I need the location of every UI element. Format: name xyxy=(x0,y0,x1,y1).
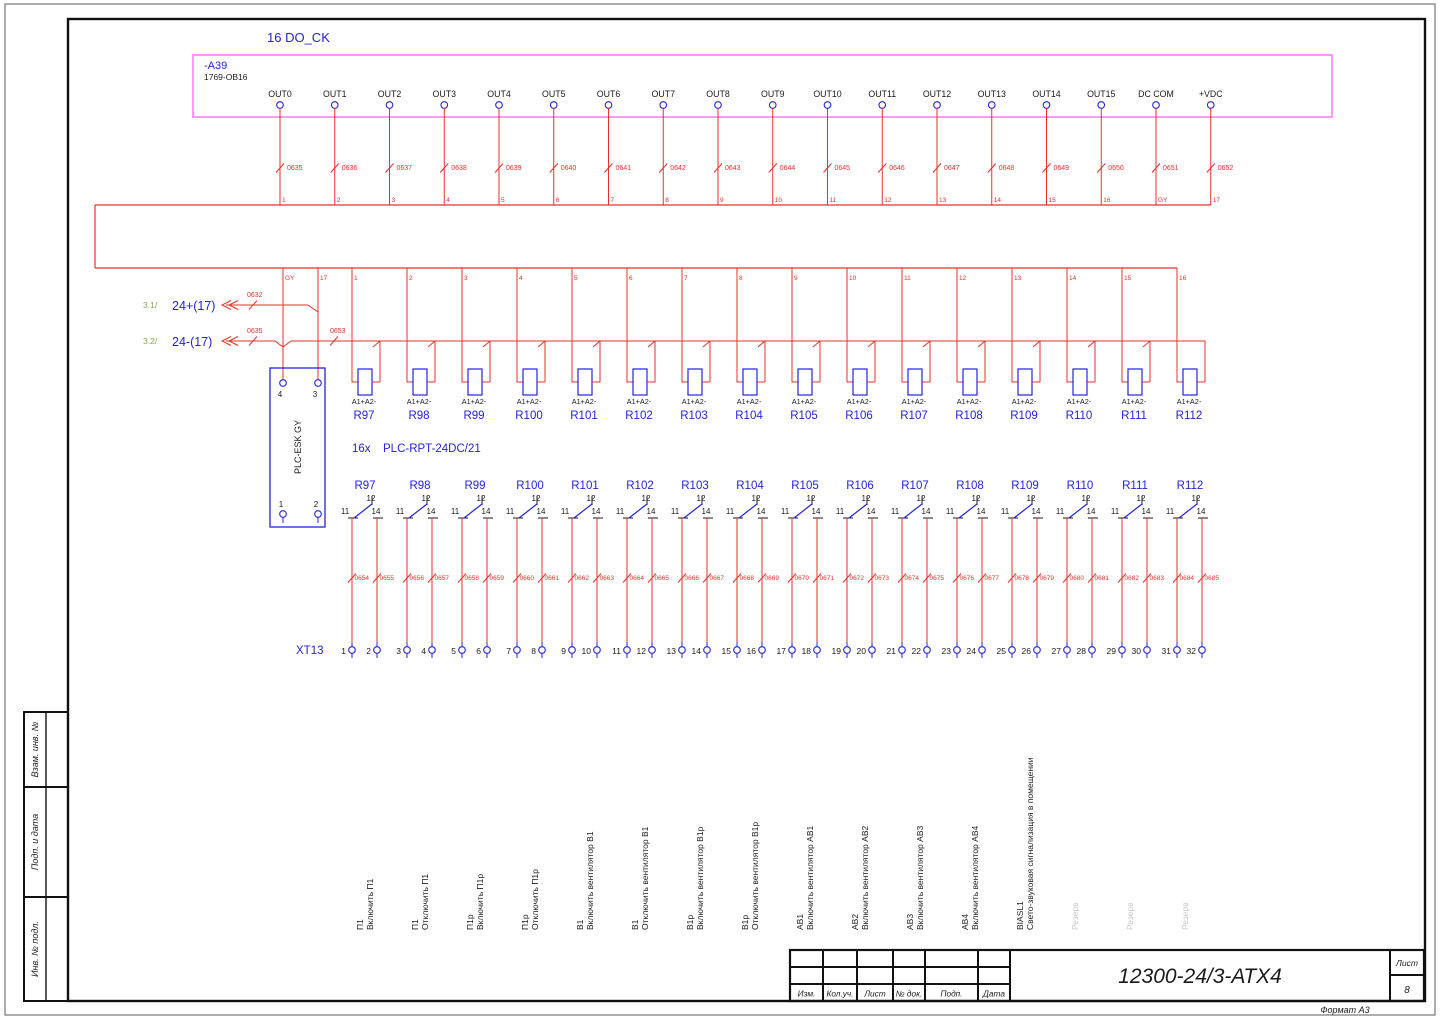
wire-number: 0667 xyxy=(710,575,725,582)
contact-pin-11: 11 xyxy=(781,507,790,516)
contact-lever xyxy=(464,504,482,518)
revision-column-label: Лист xyxy=(863,989,885,999)
wire-number: 0648 xyxy=(999,165,1015,172)
contact-pin-14: 14 xyxy=(372,507,381,516)
junction-jog xyxy=(538,341,545,347)
coil-terminal-label: A1+A2- xyxy=(627,397,652,406)
wire-number: 0668 xyxy=(740,575,755,582)
relay-contact-name: R111 xyxy=(1122,480,1148,492)
pin-circle xyxy=(277,102,284,109)
contact-pin-14: 14 xyxy=(702,507,711,516)
function-description-line: Включить вентилятор АВ4 xyxy=(970,826,980,930)
relay-contact-name: R112 xyxy=(1177,480,1204,492)
function-description-line: В1р xyxy=(740,915,750,930)
terminal-circle xyxy=(954,647,961,654)
function-description: В1рОтключить вентилятор В1р xyxy=(740,822,760,930)
relay-coil xyxy=(688,369,702,395)
terminal-circle xyxy=(349,647,356,654)
function-description-line: Включить П1 xyxy=(365,878,375,930)
wire-number: 0673 xyxy=(875,575,890,582)
function-description-line: Резерв xyxy=(1070,902,1080,930)
pin-circle xyxy=(934,102,941,109)
pin-circle xyxy=(1098,102,1105,109)
interface-pin-circle xyxy=(280,511,287,518)
terminal-number: 28 xyxy=(1077,646,1087,656)
relay-name: R109 xyxy=(1010,410,1038,422)
terminal-circle xyxy=(1034,647,1041,654)
contact-pin-11: 11 xyxy=(726,507,735,516)
function-description-line: Отключить вентилятор В1р xyxy=(750,822,760,930)
bundle-entry-number: 11 xyxy=(830,197,837,204)
function-description-line: П1р xyxy=(520,914,530,930)
bundle-entry-number: 4 xyxy=(446,197,450,204)
terminal-number: 18 xyxy=(802,646,812,656)
coil-terminal-label: A1+A2- xyxy=(352,397,377,406)
contact-lever xyxy=(794,504,812,518)
function-description: П1Включить П1 xyxy=(355,878,375,930)
relay-name: R103 xyxy=(680,410,708,422)
contact-pin-14: 14 xyxy=(1197,507,1206,516)
relay-coil xyxy=(963,369,977,395)
relay-contact-name: R104 xyxy=(736,480,764,492)
wire-number: 0659 xyxy=(490,575,505,582)
coil-drop xyxy=(902,268,908,382)
wire-number: 0642 xyxy=(670,165,686,172)
terminal-number: 32 xyxy=(1187,646,1197,656)
coil-drop xyxy=(847,268,853,382)
contact-lever xyxy=(409,504,427,518)
function-description-line: BIASL1 xyxy=(1015,901,1025,930)
function-description: АВ4Включить вентилятор АВ4 xyxy=(960,826,980,930)
contact-lever xyxy=(1124,504,1142,518)
terminal-number: 19 xyxy=(832,646,842,656)
contact-pin-14: 14 xyxy=(427,507,436,516)
pin-label: OUT12 xyxy=(923,89,951,99)
pin-label: OUT10 xyxy=(813,89,841,99)
function-description-line: Отключить П1р xyxy=(530,869,540,930)
bundle-entry-number: 9 xyxy=(720,197,724,204)
terminal-number: 1 xyxy=(341,646,346,656)
terminal-circle xyxy=(649,647,656,654)
contact-pin-14: 14 xyxy=(1142,507,1151,516)
function-description-line: Включить вентилятор АВ3 xyxy=(915,826,925,930)
interface-pin-circle xyxy=(280,380,287,387)
function-description-line: Включить вентилятор В1 xyxy=(585,831,595,930)
terminal-circle xyxy=(594,647,601,654)
terminal-circle xyxy=(1009,647,1016,654)
pin-label: OUT9 xyxy=(761,89,785,99)
pin-circle xyxy=(331,102,338,109)
coil-drop xyxy=(407,268,413,382)
junction-jog xyxy=(648,341,655,347)
function-description: П1рОтключить П1р xyxy=(520,869,540,930)
function-description-line: Включить вентилятор АВ1 xyxy=(805,826,815,930)
bundle-exit-number: 6 xyxy=(629,275,633,282)
pin-label: OUT1 xyxy=(323,89,347,99)
contact-lever xyxy=(354,504,372,518)
junction-jog xyxy=(1033,341,1040,347)
relay-coil xyxy=(743,369,757,395)
terminal-number: 10 xyxy=(582,646,592,656)
wire-number: 0660 xyxy=(520,575,535,582)
contact-pin-12: 12 xyxy=(1082,494,1091,503)
plc-module-box xyxy=(193,55,1332,117)
module-type: 1769-OB16 xyxy=(204,72,248,82)
function-description-line: Включить вентилятор В1р xyxy=(695,826,705,930)
function-description-line: АВ2 xyxy=(850,914,860,930)
wire-number: 0684 xyxy=(1180,575,1195,582)
relay-contact-name: R103 xyxy=(681,480,709,492)
contact-pin-12: 12 xyxy=(972,494,981,503)
relay-name: R112 xyxy=(1176,410,1203,422)
contact-pin-11: 11 xyxy=(1166,507,1175,516)
relay-contact-name: R101 xyxy=(571,480,599,492)
pin-circle xyxy=(824,102,831,109)
contact-pin-12: 12 xyxy=(587,494,596,503)
pin-circle xyxy=(660,102,667,109)
coil-terminal-label: A1+A2- xyxy=(737,397,762,406)
pin-circle xyxy=(769,102,776,109)
terminal-number: 9 xyxy=(561,646,566,656)
wire-number: 0676 xyxy=(960,575,975,582)
wire-number: 0681 xyxy=(1095,575,1110,582)
function-description: Резерв xyxy=(1180,902,1190,930)
terminal-circle xyxy=(624,647,631,654)
contact-pin-14: 14 xyxy=(592,507,601,516)
contact-pin-14: 14 xyxy=(977,507,986,516)
relay-contact-name: R99 xyxy=(464,480,485,492)
bundle-entry-number: 8 xyxy=(665,197,669,204)
junction-jog xyxy=(758,341,765,347)
terminal-number: 3 xyxy=(396,646,401,656)
relay-coil xyxy=(798,369,812,395)
junction-jog xyxy=(868,341,875,347)
contact-pin-14: 14 xyxy=(922,507,931,516)
contact-pin-12: 12 xyxy=(642,494,651,503)
contact-pin-14: 14 xyxy=(812,507,821,516)
sheet-number: 8 xyxy=(1404,985,1410,996)
function-description-line: Включить П1р xyxy=(475,874,485,930)
junction-jog xyxy=(308,305,318,312)
wire-number: 0664 xyxy=(630,575,645,582)
coil-drop xyxy=(1122,268,1128,382)
pin-circle xyxy=(1207,102,1214,109)
contact-pin-14: 14 xyxy=(482,507,491,516)
bundle-entry-number: 13 xyxy=(939,197,947,204)
wire-number: 0679 xyxy=(1040,575,1055,582)
module-title: 16 DO_CK xyxy=(267,30,330,45)
function-description: АВ3Включить вентилятор АВ3 xyxy=(905,826,925,930)
schematic-canvas: Взам. инв. №Подп. и датаИнв. № подл.Изм.… xyxy=(0,0,1441,1021)
function-description-line: П1 xyxy=(410,919,420,930)
function-description-line: Резерв xyxy=(1125,902,1135,930)
contact-lever xyxy=(739,504,757,518)
function-description: П1рВключить П1р xyxy=(465,874,485,930)
contact-pin-11: 11 xyxy=(341,507,350,516)
interface-module-label: PLC-ESK GY xyxy=(293,420,303,474)
wire-number: 0635 xyxy=(247,328,263,335)
terminal-circle xyxy=(1119,647,1126,654)
junction-jog xyxy=(483,341,490,347)
terminal-circle xyxy=(514,647,521,654)
terminal-number: 31 xyxy=(1162,646,1172,656)
bundle-entry-number: 17 xyxy=(1213,197,1221,204)
coil-terminal-label: A1+A2- xyxy=(462,397,487,406)
bundle-exit-number: 17 xyxy=(320,275,328,282)
contact-pin-12: 12 xyxy=(1137,494,1146,503)
bundle-exit-number: 5 xyxy=(574,275,578,282)
terminal-circle xyxy=(759,647,766,654)
terminal-strip-name: XT13 xyxy=(296,645,324,657)
terminal-circle xyxy=(1089,647,1096,654)
relay-coil xyxy=(1128,369,1142,395)
bundle-exit-number: 8 xyxy=(739,275,743,282)
document-number: 12300-24/3-АТХ4 xyxy=(1118,965,1282,988)
coil-terminal-label: A1+A2- xyxy=(902,397,927,406)
relay-coil xyxy=(413,369,427,395)
pin-label: OUT11 xyxy=(868,89,896,99)
sheet-reference: 3.2/ xyxy=(143,336,158,346)
wire-number: 0636 xyxy=(342,165,358,172)
terminal-number: 13 xyxy=(667,646,677,656)
relay-name: R107 xyxy=(900,410,928,422)
terminal-circle xyxy=(459,647,466,654)
pin-circle xyxy=(988,102,995,109)
contact-pin-11: 11 xyxy=(671,507,680,516)
terminal-circle xyxy=(734,647,741,654)
wire-number: 0656 xyxy=(410,575,425,582)
terminal-number: 29 xyxy=(1107,646,1117,656)
coil-drop xyxy=(682,268,688,382)
relay-coil xyxy=(1183,369,1197,395)
wire-number: 0635 xyxy=(287,165,303,172)
interface-pin-number: 1 xyxy=(279,500,284,509)
wire-number: 0662 xyxy=(575,575,590,582)
terminal-circle xyxy=(679,647,686,654)
interface-pin-number: 2 xyxy=(314,500,319,509)
terminal-number: 14 xyxy=(692,646,702,656)
bundle-entry-number: GY xyxy=(1158,197,1168,204)
pin-label: OUT3 xyxy=(433,89,457,99)
terminal-number: 27 xyxy=(1052,646,1062,656)
coil-terminal-label: A1+A2- xyxy=(572,397,597,406)
junction-jog xyxy=(1143,341,1150,347)
relay-coil xyxy=(468,369,482,395)
contact-pin-12: 12 xyxy=(697,494,706,503)
contact-lever xyxy=(629,504,647,518)
terminal-number: 6 xyxy=(476,646,481,656)
pin-label: OUT6 xyxy=(597,89,621,99)
terminal-circle xyxy=(789,647,796,654)
terminal-number: 21 xyxy=(887,646,897,656)
terminal-number: 17 xyxy=(777,646,787,656)
relay-contact-name: R106 xyxy=(846,480,874,492)
relay-coil xyxy=(908,369,922,395)
bundle-exit-number: 10 xyxy=(849,275,857,282)
bundle-exit-number: 13 xyxy=(1014,275,1022,282)
wire-number: 0632 xyxy=(247,292,263,299)
bundle-exit-number: 9 xyxy=(794,275,798,282)
supply-minus-label: 24-(17) xyxy=(172,335,212,349)
terminal-number: 24 xyxy=(967,646,977,656)
function-description-line: Отключить П1 xyxy=(420,874,430,930)
function-description-line: АВ1 xyxy=(795,914,805,930)
wire-number: 0650 xyxy=(1108,165,1124,172)
bundle-entry-number: 5 xyxy=(501,197,505,204)
pin-label: DC COM xyxy=(1138,89,1174,99)
stamp-row-label: Инв. № подл. xyxy=(30,921,40,977)
terminal-number: 15 xyxy=(722,646,732,656)
revision-column-label: Кол.уч. xyxy=(826,989,853,999)
contact-pin-12: 12 xyxy=(862,494,871,503)
pin-circle xyxy=(550,102,557,109)
contact-lever xyxy=(1069,504,1087,518)
wire-number: 0666 xyxy=(685,575,700,582)
pin-circle xyxy=(441,102,448,109)
contact-pin-12: 12 xyxy=(1027,494,1036,503)
contact-pin-14: 14 xyxy=(867,507,876,516)
terminal-circle xyxy=(1144,647,1151,654)
coil-terminal-label: A1+A2- xyxy=(847,397,872,406)
pin-circle xyxy=(496,102,503,109)
coil-drop xyxy=(1012,268,1018,382)
page-outer-border xyxy=(5,4,1435,1015)
relay-contact-name: R105 xyxy=(791,480,819,492)
terminal-circle xyxy=(814,647,821,654)
wire-number: 0654 xyxy=(355,575,370,582)
pin-label: OUT2 xyxy=(378,89,402,99)
bundle-exit-number: 14 xyxy=(1069,275,1077,282)
contact-pin-12: 12 xyxy=(1192,494,1201,503)
bundle-entry-number: 15 xyxy=(1049,197,1057,204)
terminal-number: 4 xyxy=(421,646,426,656)
terminal-circle xyxy=(539,647,546,654)
relay-contact-name: R100 xyxy=(516,480,544,492)
contact-pin-14: 14 xyxy=(1032,507,1041,516)
pin-label: +VDC xyxy=(1199,89,1223,99)
wire-number: 0682 xyxy=(1125,575,1140,582)
terminal-circle xyxy=(1174,647,1181,654)
terminal-number: 25 xyxy=(997,646,1007,656)
coil-drop xyxy=(1067,268,1073,382)
coil-terminal-label: A1+A2- xyxy=(957,397,982,406)
terminal-circle xyxy=(429,647,436,654)
pin-circle xyxy=(605,102,612,109)
relay-coil xyxy=(578,369,592,395)
bundle-entry-number: 6 xyxy=(556,197,560,204)
wire-number: 0639 xyxy=(506,165,522,172)
wire-number: 0675 xyxy=(930,575,945,582)
sheet-reference: 3.1/ xyxy=(143,300,158,310)
relay-name: R97 xyxy=(353,410,374,422)
coil-terminal-label: A1+A2- xyxy=(1177,397,1202,406)
relay-contact-name: R109 xyxy=(1011,480,1039,492)
wire-number: 0655 xyxy=(380,575,395,582)
junction-jog xyxy=(373,341,380,347)
relay-name: R98 xyxy=(408,410,429,422)
interface-pin-circle xyxy=(315,380,322,387)
terminal-circle xyxy=(924,647,931,654)
pin-circle xyxy=(1153,102,1160,109)
function-description-line: П1 xyxy=(355,919,365,930)
relay-coil xyxy=(1073,369,1087,395)
relay-name: R104 xyxy=(735,410,763,422)
pin-label: OUT13 xyxy=(978,89,1006,99)
coil-terminal-label: A1+A2- xyxy=(407,397,432,406)
function-description: В1Включить вентилятор В1 xyxy=(575,831,595,930)
bundle-exit-number: 7 xyxy=(684,275,688,282)
wire-number: 0653 xyxy=(330,328,346,335)
revision-column-label: Дата xyxy=(982,989,1005,999)
coil-drop xyxy=(352,268,358,382)
relay-coil xyxy=(358,369,372,395)
stamp-row-label: Подп. и дата xyxy=(30,814,40,870)
bundle-exit-number: 16 xyxy=(1179,275,1187,282)
relay-name: R106 xyxy=(845,410,873,422)
terminal-number: 26 xyxy=(1022,646,1032,656)
relay-contact-name: R110 xyxy=(1067,480,1094,492)
function-description-line: Резерв xyxy=(1180,902,1190,930)
contact-lever xyxy=(684,504,702,518)
pin-label: OUT14 xyxy=(1032,89,1060,99)
terminal-number: 2 xyxy=(366,646,371,656)
wire-number: 0644 xyxy=(780,165,796,172)
contact-lever xyxy=(519,504,537,518)
bundle-entry-number: 10 xyxy=(775,197,783,204)
terminal-number: 8 xyxy=(531,646,536,656)
coil-drop xyxy=(737,268,743,382)
coil-terminal-label: A1+A2- xyxy=(792,397,817,406)
relay-coil xyxy=(633,369,647,395)
wire-number: 0683 xyxy=(1150,575,1165,582)
contact-pin-12: 12 xyxy=(917,494,926,503)
contact-pin-12: 12 xyxy=(477,494,486,503)
relay-name: R110 xyxy=(1066,410,1093,422)
contact-lever xyxy=(1014,504,1032,518)
terminal-circle xyxy=(979,647,986,654)
terminal-circle xyxy=(404,647,411,654)
relay-name: R101 xyxy=(570,410,598,422)
wire-number: 0672 xyxy=(850,575,865,582)
contact-pin-11: 11 xyxy=(616,507,625,516)
wire-number: 0671 xyxy=(820,575,835,582)
bundle-exit-number: 3 xyxy=(464,275,468,282)
coil-a2-riser xyxy=(1198,341,1205,382)
bundle-entry-number: 14 xyxy=(994,197,1002,204)
terminal-number: 16 xyxy=(747,646,757,656)
junction-jog xyxy=(923,341,930,347)
terminal-circle xyxy=(1064,647,1071,654)
function-description-line: Отключить вентилятор В1 xyxy=(640,826,650,930)
relay-name: R100 xyxy=(515,410,543,422)
bundle-entry-number: 16 xyxy=(1103,197,1111,204)
bundle-entry-number: 1 xyxy=(282,197,286,204)
function-description: Резерв xyxy=(1070,902,1080,930)
function-description-line: В1 xyxy=(630,919,640,930)
pin-label: OUT0 xyxy=(268,89,292,99)
stamp-row-label: Взам. инв. № xyxy=(30,721,40,777)
coil-drop xyxy=(957,268,963,382)
wire-number: 0641 xyxy=(616,165,632,172)
wire-number: 0678 xyxy=(1015,575,1030,582)
wire-number: 0638 xyxy=(451,165,467,172)
function-description-line: АВ4 xyxy=(960,914,970,930)
supply-plus-label: 24+(17) xyxy=(172,299,215,313)
format-note: Формат А3 xyxy=(1320,1005,1369,1015)
relay-coil xyxy=(1018,369,1032,395)
drawing-sheet: Взам. инв. №Подп. и датаИнв. № подл.Изм.… xyxy=(0,0,1441,1021)
junction-jog xyxy=(428,341,435,347)
